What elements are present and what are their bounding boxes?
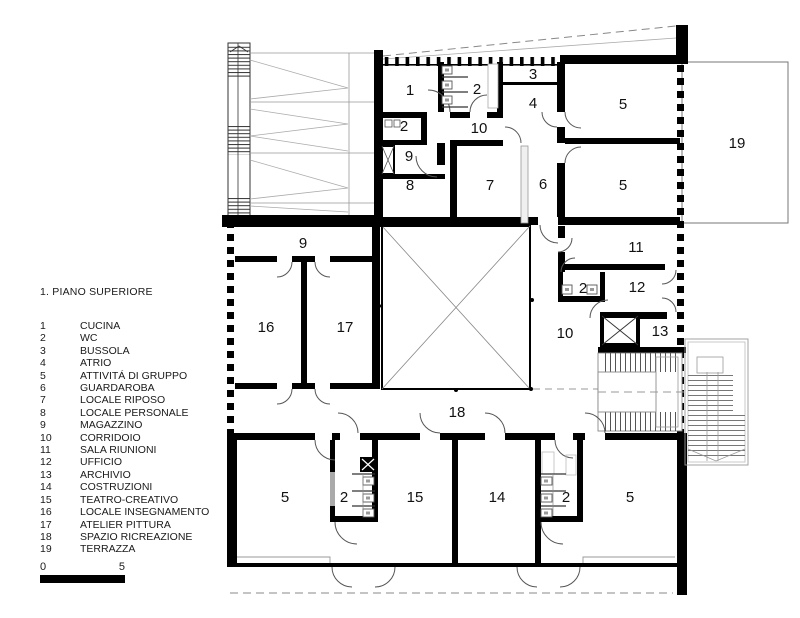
floor-plan-drawing: 1 2 3 4 10 2 9 8 7 6 5 5 19 9 16 17 11 2…: [0, 0, 800, 618]
elevator-shaft: [602, 316, 638, 345]
window-sill-left: [237, 557, 330, 563]
room-label-cucina: 1: [406, 82, 414, 99]
room-label-costruzioni: 14: [489, 489, 506, 506]
room-label-attivita-4: 5: [626, 489, 634, 506]
room-label-wc-mid: 2: [579, 280, 587, 297]
toilet-fixtures-bottom-left: [330, 457, 376, 517]
room-label-wc-small: 2: [400, 118, 408, 135]
room-label-magazzino-top: 9: [405, 148, 413, 165]
room-label-ufficio: 12: [629, 279, 646, 296]
shaft-x-room9: [382, 146, 394, 174]
interior-stair: [598, 353, 686, 431]
room-label-attivita-3: 5: [281, 489, 289, 506]
room-label-corridoio-top: 10: [471, 120, 488, 137]
room-label-teatro: 15: [407, 489, 424, 506]
room-label-insegnamento: 16: [258, 319, 275, 336]
room-label-guardaroba: 6: [539, 176, 547, 193]
room-label-corridoio-mid: 10: [557, 325, 574, 342]
room-label-locale-personale: 8: [406, 177, 414, 194]
room-label-atrio: 4: [529, 95, 537, 112]
toilet-fixtures-bottom-right: [541, 452, 576, 517]
room-label-wc-top: 2: [473, 81, 481, 98]
room-label-wc-bottom-left: 2: [340, 489, 348, 506]
toilet-fixtures-top: [442, 64, 498, 108]
window-sill-right: [583, 557, 675, 563]
room-label-bussola: 3: [529, 66, 537, 83]
room-label-atelier: 17: [337, 319, 354, 336]
sink-fixture-small-wc: [385, 120, 400, 127]
room-label-ricreazione: 18: [449, 404, 466, 421]
room-label-sala-riunioni: 11: [628, 239, 644, 256]
closet-partition: [521, 146, 528, 223]
room-label-archivio: 13: [652, 323, 669, 340]
room-label-magazzino-mid: 9: [299, 235, 307, 252]
room-label-terrazza: 19: [729, 135, 746, 152]
room-label-wc-bottom-right: 2: [562, 489, 570, 506]
room-label-locale-riposo: 7: [486, 177, 494, 194]
room-label-attivita-1: 5: [619, 96, 627, 113]
room-label-attivita-2: 5: [619, 177, 627, 194]
floorplan-page: 1. PIANO SUPERIORE 1CUCINA 2WC 3BUSSOLA …: [0, 0, 800, 618]
exterior-stair: [685, 339, 748, 465]
ramp-area: [228, 43, 374, 217]
